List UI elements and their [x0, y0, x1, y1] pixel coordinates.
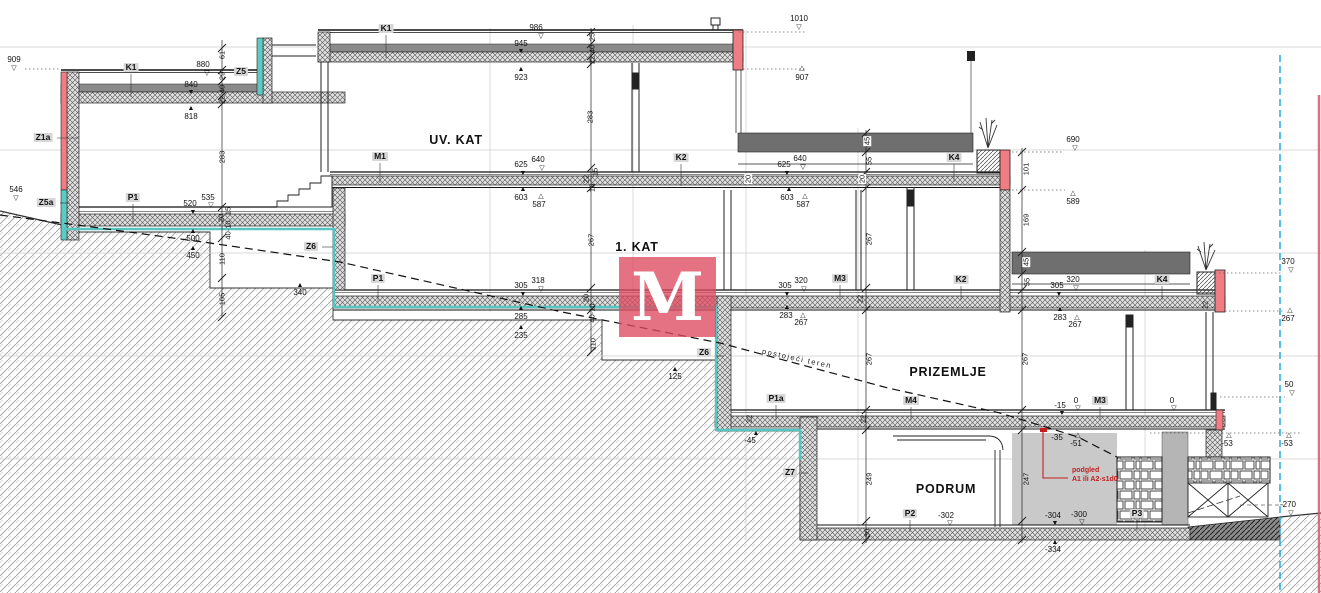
tag-k2-top: K2 — [674, 153, 689, 162]
dim-45-up: 45 — [863, 136, 871, 146]
elev-640-k2: 640 — [793, 155, 806, 163]
tag-z6-left: Z6 — [304, 242, 318, 251]
elev-305-m3: 305 — [778, 282, 791, 290]
dim-267c: 267 — [865, 353, 873, 366]
marker-0a: ▽ — [1075, 405, 1080, 412]
tag-p1-main: P1 — [371, 274, 385, 283]
dim-283a: 283 — [218, 151, 226, 164]
tag-z7: Z7 — [783, 468, 797, 477]
marker-305-p1: ▼ — [520, 291, 527, 298]
marker-520: ▼ — [190, 209, 197, 216]
marker-267-m3: △ — [800, 312, 805, 319]
dim-267d: 267 — [1021, 353, 1029, 366]
dim-4010b: 40·10 — [588, 303, 596, 322]
marker-986: ▽ — [538, 33, 543, 40]
dim-25: 25 — [588, 33, 596, 41]
elev-51: -51 — [1070, 440, 1082, 448]
elev-945: 945 — [514, 40, 527, 48]
marker-340: ▲ — [297, 282, 304, 289]
marker-50: ▽ — [1289, 390, 1294, 397]
dim-4010a: 40·10 — [224, 220, 232, 239]
elev-283-m3: 283 — [779, 312, 792, 320]
note-podgled: podgled — [1072, 467, 1099, 474]
marker-909: ▽ — [11, 65, 16, 72]
elev-0b: 0 — [1170, 397, 1174, 405]
marker-587-m1: △ — [538, 193, 543, 200]
elev-270: -270 — [1280, 501, 1296, 509]
elev-450: 450 — [186, 252, 199, 260]
dim-55-low: 55 — [1023, 278, 1031, 286]
tag-z6-mid: Z6 — [697, 348, 711, 357]
marker-320-k4: ▽ — [1073, 285, 1078, 292]
elev-370: 370 — [1281, 258, 1294, 266]
dim-247: 247 — [1022, 473, 1030, 486]
elev-283-k4: 283 — [1053, 314, 1066, 322]
marker-285: ▲ — [518, 305, 525, 312]
dim-20-up: 20 — [858, 174, 866, 184]
marker-923: ▲ — [518, 66, 525, 73]
dim-22f: 22 — [745, 415, 753, 423]
dim-22e: 22 — [859, 415, 867, 423]
dim-101: 101 — [1022, 163, 1030, 176]
marker-690: ▽ — [1072, 145, 1077, 152]
dim-29: 29 — [218, 72, 226, 80]
elev-300: -300 — [1071, 511, 1087, 519]
elev-880: 880 — [196, 61, 209, 69]
marker-546: ▽ — [13, 195, 18, 202]
dim-40b: 40 — [588, 45, 596, 53]
elev-840: 840 — [184, 81, 197, 89]
marker-302: ▽ — [947, 520, 952, 527]
marker-304: ▼ — [1052, 520, 1059, 527]
floor-1-kat: 1. KAT — [615, 241, 658, 254]
note-a1-a2: A1 ili A2-s1d0 — [1072, 476, 1118, 483]
marker-320-m3: ▽ — [801, 286, 806, 293]
floor-uv-kat: UV. KAT — [429, 134, 483, 147]
elev-305-p1: 305 — [514, 282, 527, 290]
elev-304: -304 — [1045, 512, 1061, 520]
marker-450: ▲ — [190, 245, 197, 252]
elev-625-m1: 625 — [514, 161, 527, 169]
elev-53a: -53 — [1221, 440, 1233, 448]
marker-53a: △ — [1226, 432, 1231, 439]
tag-p1a: P1a — [766, 394, 785, 403]
dim-15a: 15 — [224, 207, 232, 215]
elev-587-k2: 587 — [796, 201, 809, 209]
dim-40a: 40 — [218, 85, 226, 93]
elev-267-m3: 267 — [794, 319, 807, 327]
marker-818: ▲ — [188, 105, 195, 112]
marker-53b: △ — [1286, 432, 1291, 439]
marker-267-k4: △ — [1074, 314, 1079, 321]
marker-840: ▼ — [188, 89, 195, 96]
elev-0a: 0 — [1074, 397, 1078, 405]
marker-587-k2: △ — [802, 193, 807, 200]
elev-285: 285 — [514, 313, 527, 321]
marker-1010: ▽ — [796, 24, 801, 31]
marker-300: ▽ — [1079, 519, 1084, 526]
tag-p2: P2 — [903, 509, 917, 518]
tag-k1-left: K1 — [124, 63, 139, 72]
elev-45: -45 — [744, 437, 756, 445]
marker-283-k4: ▲ — [1057, 306, 1064, 313]
elev-50: 50 — [1285, 381, 1294, 389]
marker-267-r: △ — [1287, 307, 1292, 314]
tag-z5a: Z5a — [37, 198, 56, 207]
marker-15: ▼ — [1059, 410, 1066, 417]
elev-603-m1: 603 — [514, 194, 527, 202]
elev-909: 909 — [7, 56, 20, 64]
marker-283-m3: ▲ — [784, 304, 791, 311]
marker-318: ▽ — [538, 286, 543, 293]
dim-22g: 22 — [1201, 301, 1209, 309]
marker-907: △ — [799, 65, 804, 72]
elev-235: 235 — [514, 332, 527, 340]
tag-k2-right: K2 — [954, 275, 969, 284]
dim-61: 61 — [218, 51, 226, 59]
marker-305-k4: ▼ — [1056, 291, 1063, 298]
elev-587-m1: 587 — [532, 201, 545, 209]
elev-320-m3: 320 — [794, 277, 807, 285]
marker-235: ▲ — [518, 324, 525, 331]
dim-45-low: 45 — [1022, 257, 1030, 267]
marker-51: △ — [1075, 432, 1080, 439]
elev-35: -35 — [1051, 434, 1063, 442]
elev-340: 340 — [293, 289, 306, 297]
elev-818: 818 — [184, 113, 197, 121]
elev-603-k2: 603 — [780, 194, 793, 202]
dim-267b: 267 — [865, 233, 873, 246]
elev-589: 589 — [1066, 198, 1079, 206]
terrain-line-label: postojeći teren — [761, 348, 832, 370]
elev-520: 520 — [183, 200, 196, 208]
tag-m4: M4 — [903, 396, 919, 405]
tag-k4-top: K4 — [947, 153, 962, 162]
marker-945: ▼ — [518, 48, 525, 55]
floor-prizemlje: PRIZEMLJE — [909, 366, 986, 379]
marker-305-m3: ▼ — [784, 291, 791, 298]
dim-22d: 22 — [856, 295, 864, 303]
tag-k1-main: K1 — [379, 24, 394, 33]
dim-22c: 22 — [582, 175, 590, 183]
marker-625-k2: ▼ — [784, 170, 791, 177]
floor-podrum: PODRUM — [916, 483, 976, 496]
marker-603-m1: ▲ — [520, 186, 527, 193]
marker-880: ▽ — [204, 70, 209, 77]
elev-546: 546 — [9, 186, 22, 194]
dim-22b: 22 — [588, 56, 596, 64]
annotation-layer: 909▽546▽880▽840▼818▲986▽945▼923▲1010▽907… — [0, 0, 1321, 593]
dim-283b: 283 — [586, 111, 594, 124]
tag-m1: M1 — [372, 152, 388, 161]
dim-30: 30 — [863, 529, 871, 537]
dim-110a: 110 — [218, 253, 226, 265]
marker-270: ▽ — [1288, 510, 1293, 517]
tag-m3-up: M3 — [832, 274, 848, 283]
dim-105: 105 — [218, 293, 226, 306]
section-drawing-canvas: M 909▽546▽880▽840▼818▲986▽945▼923▲1010▽9… — [0, 0, 1321, 593]
elev-267-k4: 267 — [1068, 321, 1081, 329]
elev-923: 923 — [514, 74, 527, 82]
elev-640-m1: 640 — [531, 156, 544, 164]
marker-370: ▽ — [1288, 267, 1293, 274]
dim-15b: 15 — [591, 168, 599, 176]
tag-p3: P3 — [1130, 509, 1144, 518]
elev-318: 318 — [531, 277, 544, 285]
elev-53b: -53 — [1281, 440, 1293, 448]
tag-k4-low: K4 — [1155, 275, 1170, 284]
marker-640-k2: ▽ — [800, 164, 805, 171]
elev-986: 986 — [529, 24, 542, 32]
elev-1010: 1010 — [790, 15, 808, 23]
dim-267a: 267 — [587, 234, 595, 247]
marker-589: △ — [1070, 190, 1075, 197]
marker-0b: ▽ — [1171, 405, 1176, 412]
tag-z5: Z5 — [234, 67, 248, 76]
marker-535: ▽ — [208, 202, 213, 209]
marker-625-m1: ▼ — [520, 170, 527, 177]
dim-169: 169 — [1022, 214, 1030, 227]
elev-15: -15 — [1054, 402, 1066, 410]
tag-m3-low: M3 — [1092, 396, 1108, 405]
dim-249: 249 — [865, 473, 873, 486]
tag-z1a: Z1a — [34, 133, 53, 142]
dim-110b: 110 — [589, 338, 597, 350]
marker-500: ▲ — [190, 228, 197, 235]
dim-20-c: 20 — [744, 174, 752, 184]
elev-907: 907 — [795, 74, 808, 82]
elev-334: -334 — [1045, 546, 1061, 554]
marker-334: ▲ — [1052, 539, 1059, 546]
tag-p1-left: P1 — [126, 193, 140, 202]
marker-640-m1: ▽ — [539, 165, 544, 172]
elev-500: 500 — [186, 235, 199, 243]
dim-55-up: 55 — [865, 157, 873, 165]
elev-125: 125 — [668, 373, 681, 381]
elev-690: 690 — [1066, 136, 1079, 144]
elev-267-r: 267 — [1281, 315, 1294, 323]
marker-125: ▲ — [672, 366, 679, 373]
elev-305-k4: 305 — [1050, 282, 1063, 290]
elev-302: -302 — [938, 512, 954, 520]
dim-16a: 16 — [588, 184, 596, 192]
elev-320-k4: 320 — [1066, 276, 1079, 284]
dim-20b: 20 — [582, 294, 590, 302]
marker-603-k2: ▲ — [786, 186, 793, 193]
dim-22a: 22 — [218, 96, 226, 104]
elev-535: 535 — [201, 194, 214, 202]
marker-45: ▲ — [753, 430, 760, 437]
elev-625-k2: 625 — [777, 161, 790, 169]
